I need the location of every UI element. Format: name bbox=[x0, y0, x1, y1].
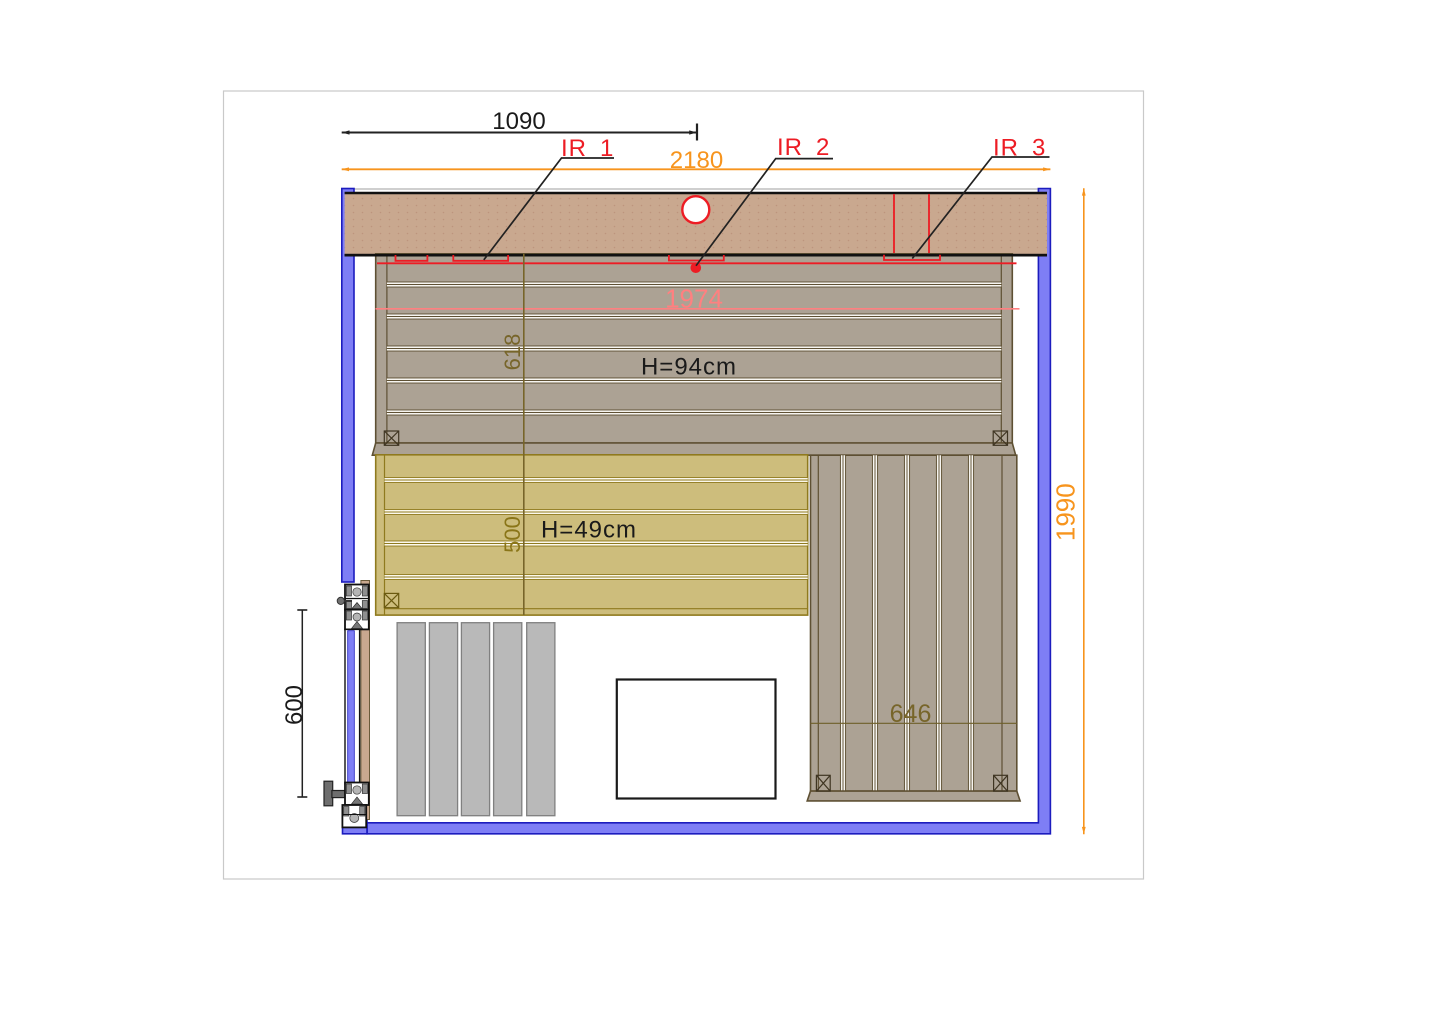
svg-text:1990: 1990 bbox=[1051, 483, 1081, 541]
svg-text:646: 646 bbox=[890, 700, 932, 728]
svg-text:1090: 1090 bbox=[492, 108, 545, 135]
svg-text:H=94cm: H=94cm bbox=[641, 354, 737, 381]
svg-text:500: 500 bbox=[500, 516, 525, 553]
svg-text:600: 600 bbox=[281, 685, 308, 725]
svg-text:1974: 1974 bbox=[665, 284, 723, 314]
svg-text:2180: 2180 bbox=[670, 147, 723, 174]
svg-text:H=49cm: H=49cm bbox=[541, 517, 637, 544]
svg-text:618: 618 bbox=[500, 334, 525, 371]
